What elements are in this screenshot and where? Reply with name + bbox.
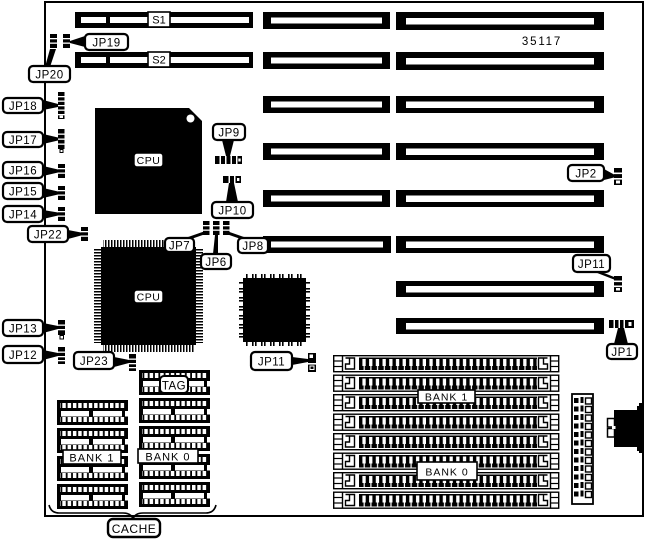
svg-text:S1: S1 <box>152 15 165 27</box>
svg-text:S2: S2 <box>152 55 165 67</box>
svg-text:BANK 1: BANK 1 <box>425 392 468 404</box>
svg-text:JP11: JP11 <box>258 357 285 369</box>
svg-text:JP20: JP20 <box>35 70 63 82</box>
svg-text:JP23: JP23 <box>80 356 108 368</box>
svg-text:JP17: JP17 <box>9 135 37 147</box>
svg-text:CPU: CPU <box>137 155 161 167</box>
svg-text:JP10: JP10 <box>218 206 246 218</box>
svg-text:JP19: JP19 <box>92 38 120 50</box>
svg-text:JP16: JP16 <box>9 166 37 178</box>
svg-text:JP15: JP15 <box>9 187 37 199</box>
svg-text:JP8: JP8 <box>242 241 263 253</box>
svg-text:JP18: JP18 <box>9 101 37 113</box>
svg-text:JP14: JP14 <box>9 210 37 222</box>
svg-text:TAG: TAG <box>162 381 186 393</box>
svg-text:JP9: JP9 <box>218 128 239 140</box>
svg-text:JP13: JP13 <box>9 324 37 336</box>
svg-text:JP6: JP6 <box>205 257 226 269</box>
svg-text:JP7: JP7 <box>169 241 190 253</box>
svg-text:BANK 0: BANK 0 <box>145 452 190 464</box>
svg-text:CPU: CPU <box>137 292 161 304</box>
svg-text:JP1: JP1 <box>611 347 632 359</box>
svg-text:BANK 1: BANK 1 <box>69 453 114 465</box>
svg-text:JP11: JP11 <box>578 259 605 271</box>
svg-text:35117: 35117 <box>522 36 562 48</box>
svg-text:CACHE: CACHE <box>112 522 157 536</box>
svg-text:JP22: JP22 <box>34 230 62 242</box>
svg-text:JP2: JP2 <box>575 169 596 181</box>
svg-text:JP12: JP12 <box>9 350 37 362</box>
svg-text:BANK 0: BANK 0 <box>425 467 468 479</box>
